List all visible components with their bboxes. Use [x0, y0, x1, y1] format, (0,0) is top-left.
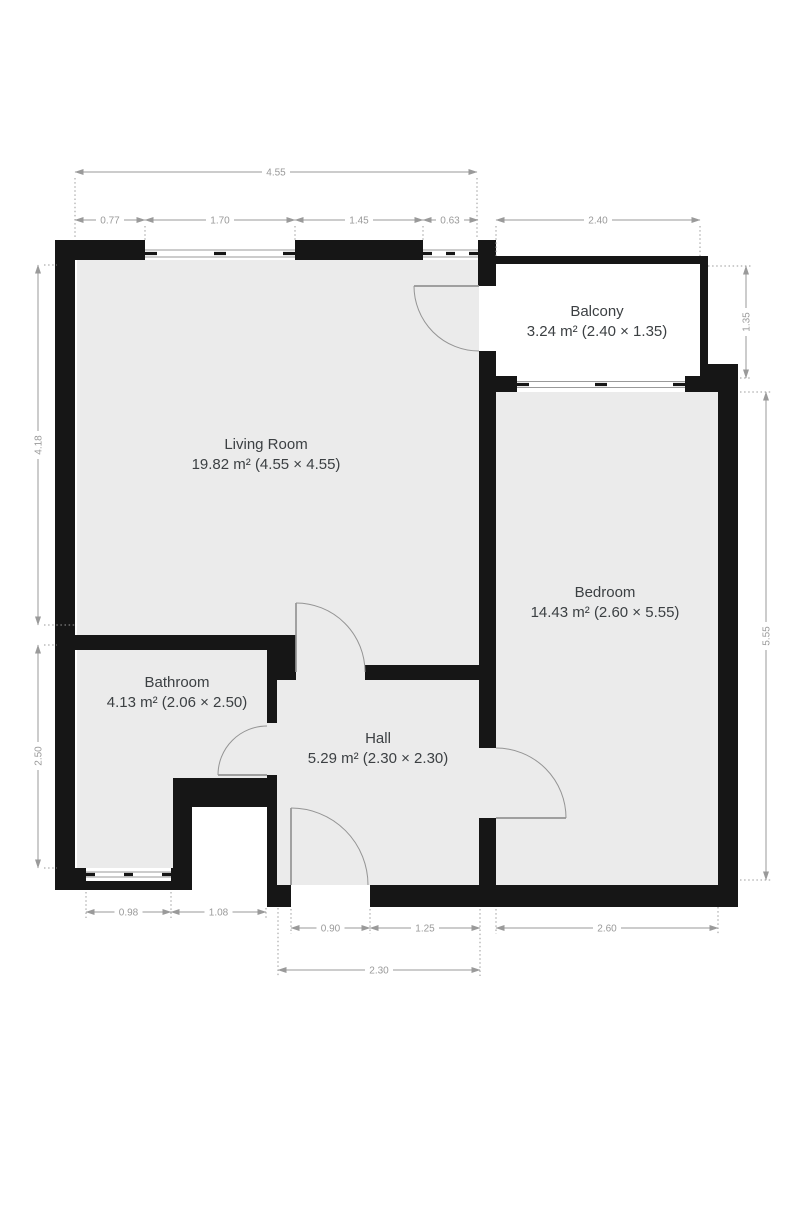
svg-text:1.70: 1.70 — [210, 216, 230, 227]
dim-bottom-bedroom: 2.60 — [593, 923, 621, 935]
dim-bottom-hall-right: 1.25 — [411, 923, 439, 935]
svg-text:1.45: 1.45 — [349, 216, 369, 227]
svg-text:2.50: 2.50 — [34, 746, 45, 766]
wall-right — [718, 376, 738, 905]
floor-plan: 4.55 0.77 1.70 1.45 0.63 2.40 4.18 2.50 — [0, 0, 797, 1205]
wall-left — [55, 240, 75, 890]
bedroom-floor — [496, 392, 718, 885]
hall-floor — [277, 680, 479, 885]
wall-bottom-right-of-door — [370, 885, 738, 907]
bathroom-area: 4.13 m² (2.06 × 2.50) — [107, 694, 248, 711]
svg-text:2.60: 2.60 — [597, 924, 617, 935]
wall-top-seg2 — [295, 240, 423, 260]
hall-name: Hall — [365, 730, 391, 747]
balcony-floor — [496, 264, 700, 378]
window-bathroom — [86, 868, 171, 881]
svg-text:4.55: 4.55 — [266, 168, 286, 179]
wall-divider-mid — [479, 351, 496, 748]
balcony-name: Balcony — [570, 303, 624, 320]
svg-text:5.55: 5.55 — [762, 626, 773, 646]
balcony-rail-right — [700, 256, 708, 378]
hall-area: 5.29 m² (2.30 × 2.30) — [308, 750, 449, 767]
wall-top-seg1 — [55, 240, 145, 260]
dim-bottom-hall-total: 2.30 — [365, 965, 393, 977]
dim-top-total: 4.55 — [262, 167, 290, 179]
wall-hall-top — [365, 665, 496, 680]
svg-text:0.98: 0.98 — [119, 908, 139, 919]
dim-bottom-bath: 0.98 — [115, 907, 143, 919]
bedroom-name: Bedroom — [575, 584, 636, 601]
living-room-name: Living Room — [224, 436, 307, 453]
window-living-room-large — [145, 240, 295, 260]
dim-left-upper: 4.18 — [33, 431, 45, 459]
svg-text:0.90: 0.90 — [321, 924, 341, 935]
wall-balcony-bedroom-left — [479, 376, 517, 392]
dim-left-lower: 2.50 — [33, 742, 45, 770]
dim-top-seg2: 1.70 — [206, 215, 234, 227]
opening-bedroom-door — [479, 748, 496, 818]
window-bedroom-balcony — [517, 376, 685, 392]
dim-right-balcony: 1.35 — [741, 308, 753, 336]
dim-top-seg3: 1.45 — [345, 215, 373, 227]
wall-notch-left — [173, 778, 192, 890]
floor-plan-svg: 4.55 0.77 1.70 1.45 0.63 2.40 4.18 2.50 — [0, 0, 797, 1200]
svg-text:1.35: 1.35 — [742, 312, 753, 332]
dim-balcony-width: 2.40 — [584, 215, 612, 227]
wall-bathroom-hall-lower — [267, 775, 277, 907]
dim-top-seg4: 0.63 — [436, 215, 464, 227]
svg-text:4.18: 4.18 — [34, 435, 45, 455]
opening-entrance-door — [291, 885, 370, 907]
dim-top-seg1: 0.77 — [96, 215, 124, 227]
living-room-area: 19.82 m² (4.55 × 4.55) — [192, 456, 341, 473]
bathroom-name: Bathroom — [144, 674, 209, 691]
svg-text:0.63: 0.63 — [440, 216, 460, 227]
svg-text:0.77: 0.77 — [100, 216, 120, 227]
svg-text:1.25: 1.25 — [415, 924, 435, 935]
wall-divider-top — [478, 240, 496, 286]
svg-text:1.08: 1.08 — [209, 908, 229, 919]
bedroom-area: 14.43 m² (2.60 × 5.55) — [531, 604, 680, 621]
svg-text:2.30: 2.30 — [369, 966, 389, 977]
wall-bathroom-hall-upper — [267, 650, 277, 723]
svg-text:2.40: 2.40 — [588, 216, 608, 227]
wall-bottom-left-of-door — [277, 885, 291, 907]
dim-bottom-notch: 1.08 — [205, 907, 233, 919]
dim-bottom-door: 0.90 — [317, 923, 345, 935]
window-living-room-small — [423, 240, 478, 260]
balcony-area: 3.24 m² (2.40 × 1.35) — [527, 323, 668, 340]
opening-bathroom-door — [267, 723, 277, 775]
balcony-rail-top — [496, 256, 708, 264]
dim-right-bedroom: 5.55 — [761, 622, 773, 650]
opening-living-hall-door — [296, 665, 365, 680]
opening-balcony-door — [479, 286, 496, 351]
wall-bathroom-top — [55, 635, 282, 650]
